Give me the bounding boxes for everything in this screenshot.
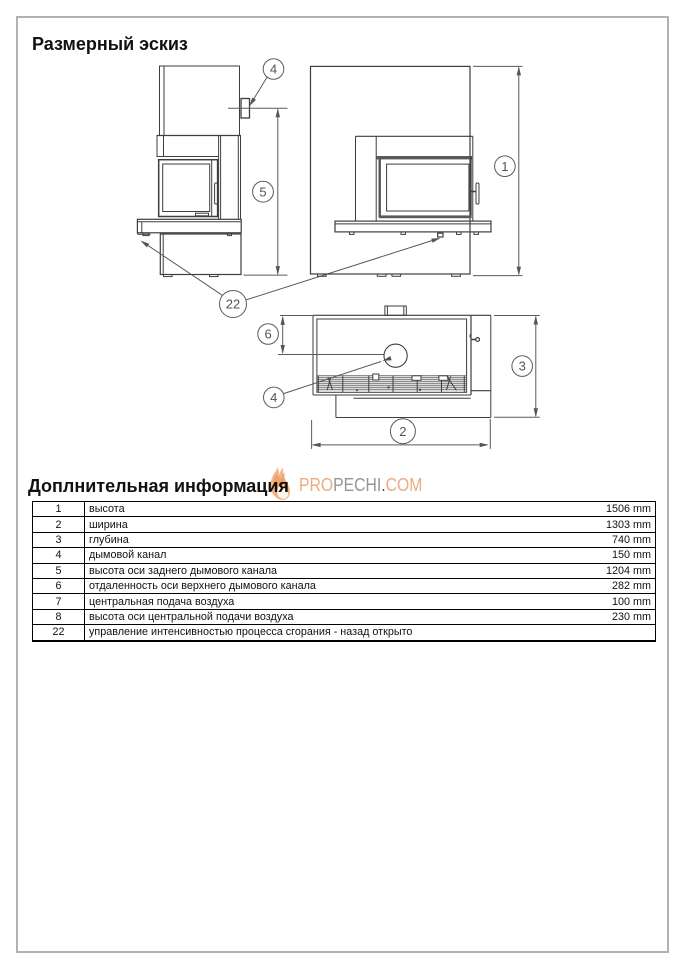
svg-text:22: 22 xyxy=(226,297,240,312)
svg-text:5: 5 xyxy=(259,184,266,199)
svg-text:6: 6 xyxy=(264,327,271,342)
svg-text:4: 4 xyxy=(270,390,277,405)
svg-text:1: 1 xyxy=(501,159,508,174)
svg-text:2: 2 xyxy=(399,424,406,439)
svg-text:4: 4 xyxy=(270,62,277,77)
svg-text:3: 3 xyxy=(519,359,526,374)
